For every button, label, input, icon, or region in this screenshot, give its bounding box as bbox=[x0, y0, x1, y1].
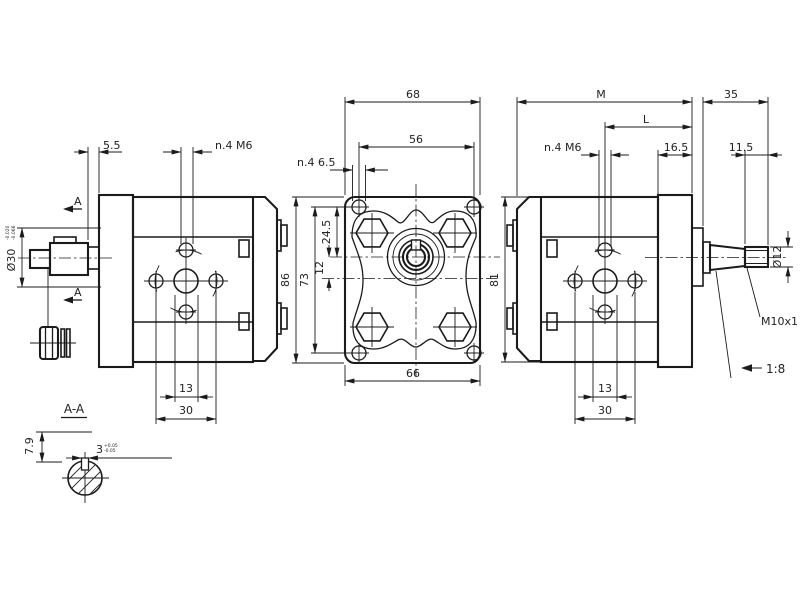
threaded-end bbox=[745, 247, 768, 267]
dim-label-n4-6-5: n.4 6.5 bbox=[297, 156, 335, 169]
right-side-view: 81 M 35 L 16.5 bbox=[488, 88, 798, 424]
dim-label-13-right: 13 bbox=[598, 382, 612, 395]
dim-label-5-5: 5.5 bbox=[103, 139, 121, 152]
technical-drawing: A A Ø30 -0.020 -0.066 5.5 bbox=[0, 0, 800, 600]
dim-24-5: 24.5 bbox=[320, 207, 337, 257]
dia30-tolerance-upper: -0.020 bbox=[5, 225, 11, 240]
dim-81: 81 bbox=[488, 197, 540, 362]
dim-label-24-5: 24.5 bbox=[320, 220, 333, 245]
dim-label-56: 56 bbox=[409, 133, 423, 146]
taper-symbol bbox=[741, 364, 752, 372]
section-a-a: A-A 3 +0.05 -0.05 7.9 bbox=[23, 402, 172, 504]
thread-label: M10x1 bbox=[761, 315, 798, 328]
left-shaft bbox=[18, 237, 112, 275]
dim-11-5: 11.5 bbox=[729, 141, 782, 244]
dim-label-30-right: 30 bbox=[598, 404, 612, 417]
right-pump-body bbox=[541, 197, 658, 362]
dim-66: 66 bbox=[345, 365, 480, 386]
dim-label-dia12: Ø12 bbox=[771, 246, 784, 269]
dim-label-M: M bbox=[596, 88, 606, 101]
dim-label-68: 68 bbox=[406, 88, 420, 101]
dim-label-86: 86 bbox=[279, 273, 292, 287]
dim-86: 86 bbox=[279, 197, 344, 363]
right-face-hole-pattern bbox=[563, 238, 647, 324]
dim-dia30: Ø30 -0.020 -0.066 bbox=[5, 225, 101, 287]
dim-3-tolerance-lower: -0.05 bbox=[104, 448, 116, 454]
thread-callout: M10x1 bbox=[747, 268, 798, 328]
dim-label-16-5: 16.5 bbox=[664, 141, 689, 154]
dim-label-13-left: 13 bbox=[179, 382, 193, 395]
right-shaft bbox=[645, 242, 788, 273]
right-spigot bbox=[692, 228, 703, 286]
dim-3: 3 +0.05 -0.05 bbox=[66, 443, 172, 458]
left-rear-cover bbox=[253, 197, 277, 361]
section-letter-top: A bbox=[74, 195, 82, 208]
dim-n4m6-left: n.4 M6 bbox=[163, 139, 252, 244]
section-cut-marker-top: A bbox=[63, 195, 82, 213]
dia30-tolerance-lower: -0.066 bbox=[11, 225, 17, 240]
dim-n4m6-right: n.4 M6 bbox=[544, 141, 629, 246]
left-side-view: A A Ø30 -0.020 -0.066 5.5 bbox=[5, 139, 287, 424]
shaft-nut-and-washer bbox=[30, 269, 76, 359]
rear-plug-top bbox=[277, 220, 287, 251]
rear-plug-bottom bbox=[277, 303, 287, 334]
dim-n4-6-5: n.4 6.5 bbox=[297, 156, 388, 201]
dim-16-5: 16.5 bbox=[658, 141, 692, 196]
dim-label-dia30: Ø30 bbox=[5, 249, 18, 272]
section-letter-bottom: A bbox=[74, 286, 82, 299]
right-flange-plate bbox=[658, 195, 692, 367]
dim-56: 56 bbox=[359, 133, 474, 199]
section-cut-marker-bottom: A bbox=[63, 286, 82, 304]
dim-label-66: 66 bbox=[406, 367, 420, 380]
front-view: 68 56 n.4 6.5 86 73 bbox=[279, 88, 500, 386]
dim-L: L bbox=[605, 113, 692, 246]
section-title: A-A bbox=[64, 402, 85, 416]
dim-label-30-left: 30 bbox=[179, 404, 193, 417]
technical-drawing-page: A A Ø30 -0.020 -0.066 5.5 bbox=[0, 0, 800, 600]
dim-label-73: 73 bbox=[298, 273, 311, 287]
section-keyway bbox=[82, 458, 89, 470]
dim-label-7-9: 7.9 bbox=[23, 437, 36, 455]
dim-label-n4m6-right: n.4 M6 bbox=[544, 141, 581, 154]
dim-label-11-5: 11.5 bbox=[729, 141, 754, 154]
left-face-hole-pattern bbox=[144, 238, 228, 324]
dim-label-81: 81 bbox=[488, 273, 501, 287]
dim-35: 35 bbox=[703, 88, 768, 245]
dim-dia12: Ø12 bbox=[770, 231, 793, 283]
right-rear-cover bbox=[517, 197, 541, 361]
left-flange-plate bbox=[99, 195, 133, 367]
right-rear-plug-top bbox=[507, 220, 517, 251]
taper-label: 1:8 bbox=[766, 362, 785, 376]
dim-label-12: 12 bbox=[313, 261, 326, 275]
dim-label-n4m6-left: n.4 M6 bbox=[215, 139, 252, 152]
dim-label-35: 35 bbox=[724, 88, 738, 101]
right-rear-plug-bottom bbox=[507, 303, 517, 334]
dim-label-L: L bbox=[643, 113, 650, 126]
dim-label-3: 3 bbox=[96, 443, 103, 456]
